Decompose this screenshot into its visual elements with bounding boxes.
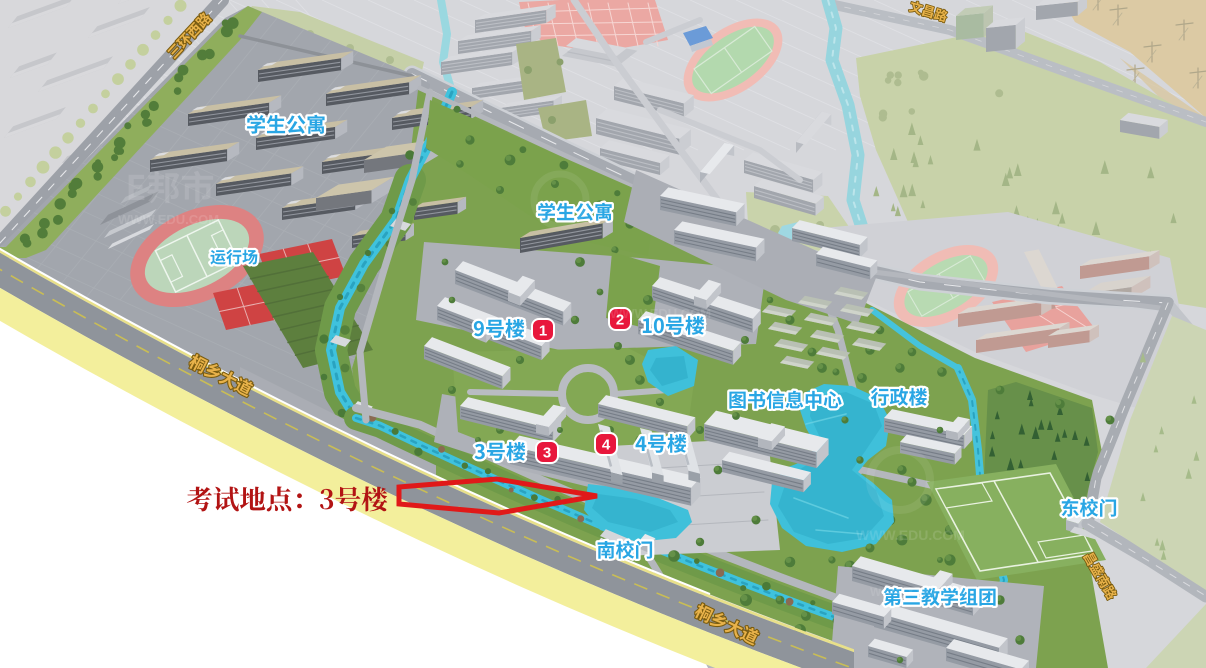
svg-text:4: 4 <box>602 437 611 454</box>
svg-text:WWW.EDU.COM: WWW.EDU.COM <box>118 212 219 227</box>
svg-text:3: 3 <box>543 445 551 462</box>
svg-text:1: 1 <box>539 323 547 340</box>
svg-text:WWW.XXXX.COM: WWW.XXXX.COM <box>870 585 970 599</box>
svg-text:WWW.EDU.COM: WWW.EDU.COM <box>856 527 965 543</box>
svg-text:WWW.EDU.COM: WWW.EDU.COM <box>610 306 711 321</box>
